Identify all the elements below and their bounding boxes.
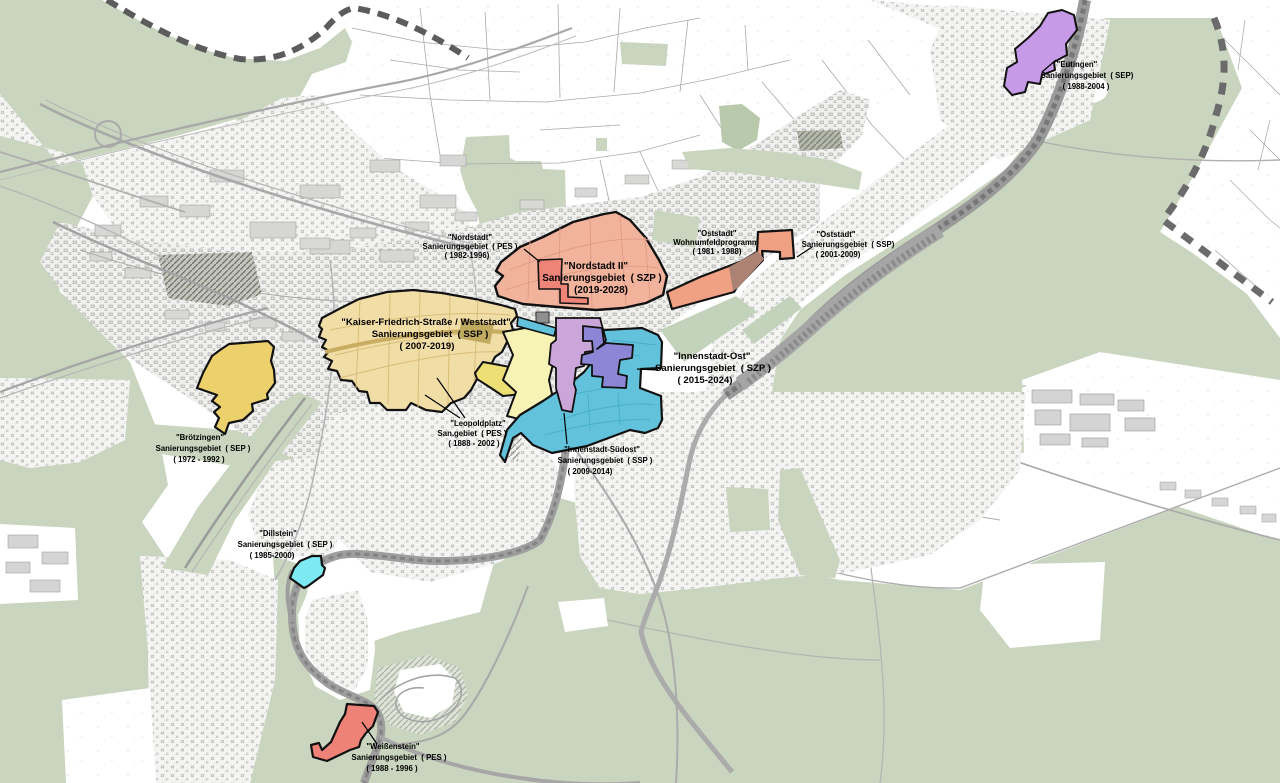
svg-text:Sanierungsgebiet ( SSP): Sanierungsgebiet ( SSP) (802, 240, 895, 249)
svg-text:Sanierungsgebiet ( SZP ): Sanierungsgebiet ( SZP ) (655, 363, 771, 374)
svg-text:( 1988-2004 ): ( 1988-2004 ) (1063, 82, 1110, 91)
svg-text:( 1981 - 1988): ( 1981 - 1988) (693, 247, 742, 256)
svg-text:( 1972 - 1992 ): ( 1972 - 1992 ) (173, 455, 225, 464)
svg-text:Sanierungsgebiet ( PES ): Sanierungsgebiet ( PES ) (423, 242, 518, 251)
svg-text:"Weißenstein": "Weißenstein" (366, 742, 419, 751)
svg-text:Wohnumfeldprogramm: Wohnumfeldprogramm (673, 238, 759, 247)
svg-text:"Innenstadt-Südost": "Innenstadt-Südost" (564, 445, 640, 454)
svg-text:( 1982-1996): ( 1982-1996) (445, 251, 490, 260)
svg-text:"Leopoldplatz": "Leopoldplatz" (450, 419, 506, 428)
svg-text:Sanierungsgebiet ( SEP ): Sanierungsgebiet ( SEP ) (238, 540, 333, 549)
svg-text:Sanierungsgebiet ( SEP ): Sanierungsgebiet ( SEP ) (156, 444, 251, 453)
svg-text:( 2015-2024): ( 2015-2024) (678, 375, 733, 386)
svg-text:"Oststadt": "Oststadt" (816, 230, 855, 239)
svg-text:( 2001-2009): ( 2001-2009) (816, 250, 861, 259)
svg-text:"Eutingen": "Eutingen" (1057, 60, 1098, 69)
svg-text:(2019-2028): (2019-2028) (574, 285, 628, 296)
svg-text:( 2007-2019): ( 2007-2019) (400, 341, 455, 352)
svg-text:( 1985-2000): ( 1985-2000) (250, 551, 295, 560)
svg-text:Sanierungsgebiet ( SSP ): Sanierungsgebiet ( SSP ) (372, 329, 489, 340)
svg-text:( 1988 - 1996 ): ( 1988 - 1996 ) (366, 764, 418, 773)
svg-text:Sanierungsgebiet ( SSP ): Sanierungsgebiet ( SSP ) (558, 456, 653, 465)
svg-text:"Brötzingen": "Brötzingen" (176, 433, 224, 442)
svg-text:"Oststadt": "Oststadt" (697, 229, 736, 238)
svg-text:"Nordstadt": "Nordstadt" (448, 233, 493, 242)
svg-text:Sanierungsgebiet ( SZP ): Sanierungsgebiet ( SZP ) (542, 273, 661, 284)
svg-text:( 2009-2014): ( 2009-2014) (568, 467, 613, 476)
svg-text:San.gebiet ( PES ): San.gebiet ( PES ) (438, 429, 507, 438)
svg-text:Sanierungsgebiet ( SEP): Sanierungsgebiet ( SEP) (1041, 71, 1134, 80)
svg-text:"Nordstadt II": "Nordstadt II" (564, 261, 629, 272)
svg-text:"Dillstein": "Dillstein" (259, 529, 297, 538)
svg-text:Sanierungsgebiet ( PES ): Sanierungsgebiet ( PES ) (352, 753, 447, 762)
svg-text:( 1888 - 2002 ): ( 1888 - 2002 ) (448, 439, 500, 448)
svg-text:"Kaiser-Friedrich-Straße / Wes: "Kaiser-Friedrich-Straße / Weststadt" (341, 317, 510, 328)
svg-text:"Innenstadt-Ost": "Innenstadt-Ost" (674, 351, 751, 362)
